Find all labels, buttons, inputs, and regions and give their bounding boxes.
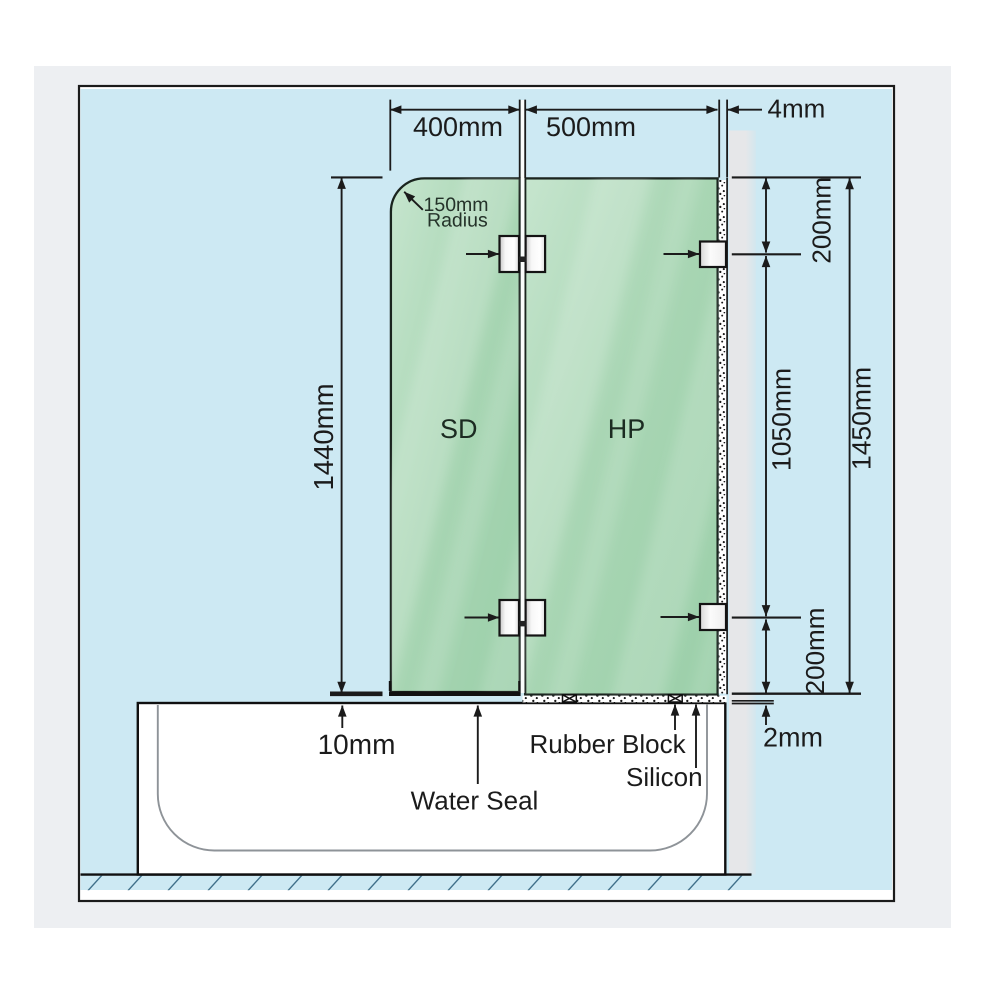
svg-text:Rubber Block: Rubber Block (530, 729, 687, 759)
svg-text:Silicon: Silicon (626, 762, 703, 792)
svg-text:HP: HP (608, 414, 646, 444)
svg-text:1440mm: 1440mm (308, 384, 339, 491)
svg-text:500mm: 500mm (546, 112, 636, 142)
svg-text:2mm: 2mm (763, 723, 823, 753)
svg-text:10mm: 10mm (318, 729, 396, 760)
svg-text:4mm: 4mm (768, 94, 826, 124)
svg-text:1450mm: 1450mm (847, 367, 877, 470)
svg-text:Water Seal: Water Seal (411, 786, 539, 816)
svg-text:200mm: 200mm (800, 608, 830, 695)
svg-text:200mm: 200mm (807, 177, 837, 264)
svg-text:400mm: 400mm (413, 112, 503, 142)
svg-text:SD: SD (440, 414, 478, 444)
svg-text:1050mm: 1050mm (767, 368, 797, 471)
svg-text:Radius: Radius (427, 210, 488, 232)
